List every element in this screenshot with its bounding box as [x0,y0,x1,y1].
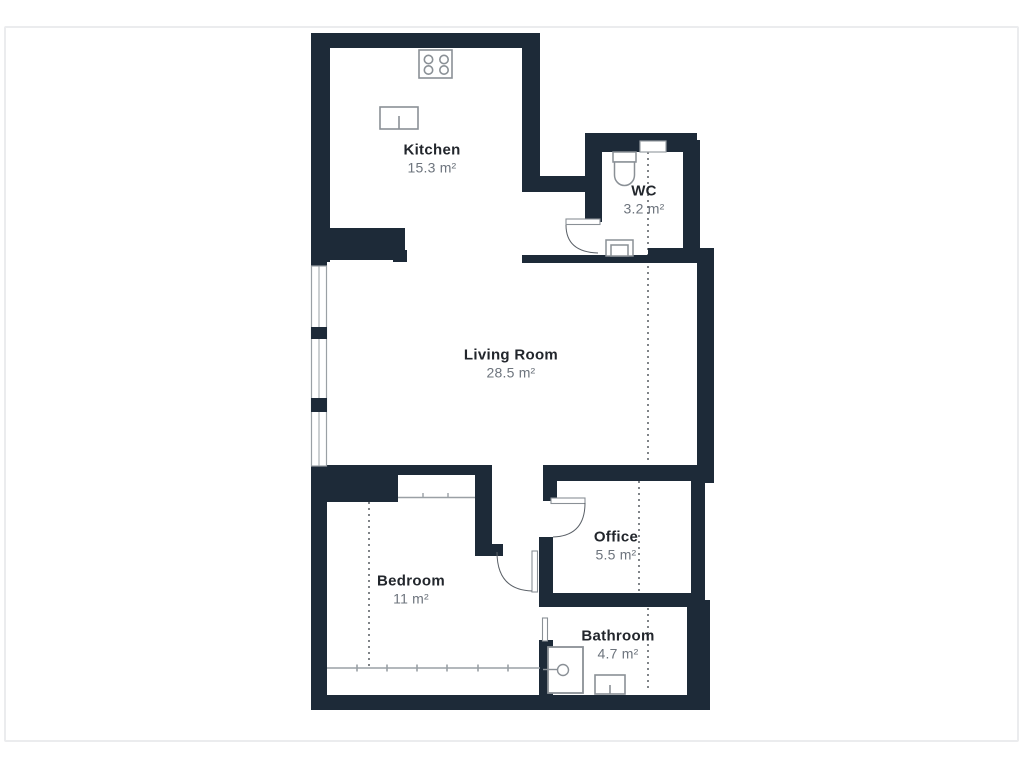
office-door [551,498,585,537]
wall-kitchen-tee [522,176,586,192]
floorplan-drawing [0,0,1024,768]
wall-bathroom-right [687,600,710,697]
windows [311,141,666,466]
office-door-leaf [551,498,585,504]
wall-kitchen-block-notch [393,250,407,262]
bedroom-door-leaf [532,551,538,592]
wall-bedroom-top-block [311,465,398,502]
wardrobe-line [327,665,540,672]
wall-living-right [697,248,714,483]
wall-bedroom-left [311,502,327,702]
wall-office-top [543,465,705,481]
bedroom-door-arc [497,552,532,591]
wall-kitchen-right [522,33,540,192]
wall-office-left-upper [543,465,557,501]
wall-bedroom-right [475,465,492,556]
wall-office-right [691,481,705,607]
wall-kitchen-top [311,33,540,48]
office-door-arc [553,503,585,537]
wall-kitchen-left [311,33,330,262]
bathroom-sink-icon [595,675,625,694]
stove-icon [419,50,452,78]
kitchen-sink-icon [380,107,418,129]
dotted-lines [369,152,648,692]
shower-icon [543,647,583,693]
wall-bedroom-top-thin [398,465,477,475]
floorplan-canvas: Kitchen 15.3 m² WC 3.2 m² Living Room 28… [0,0,1024,768]
wall-wc-right [683,140,700,255]
wc-door-arc [566,225,598,253]
walls [311,33,714,710]
wc-door-leaf [566,219,600,225]
bathroom-door-leaf [543,618,548,641]
wc-door [566,219,600,253]
wc-window [640,141,666,152]
bathroom-door [543,618,548,641]
wc-sink-icon [606,240,633,256]
window-mullion [311,398,327,412]
wall-bottom [311,695,710,710]
window-mullion [311,327,327,339]
toilet-icon [613,152,636,186]
wall-office-bottom [543,593,705,607]
bedroom-door [497,551,538,592]
living-room-window [311,266,327,466]
closet-line [398,493,475,498]
wall-kitchen-block [318,228,405,260]
